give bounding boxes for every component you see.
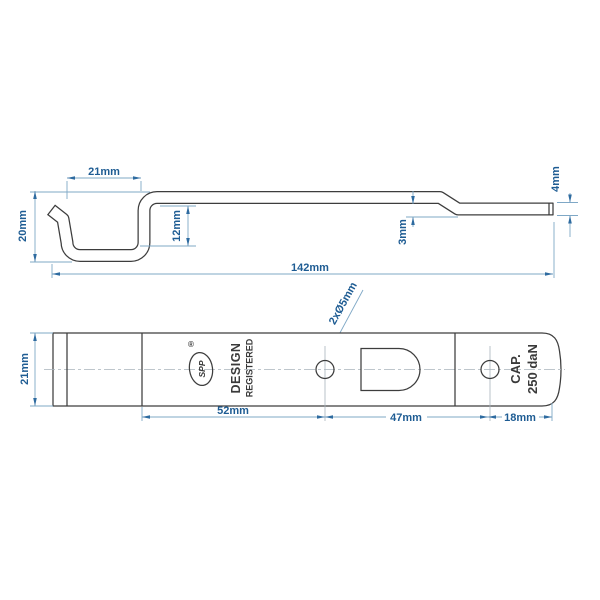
dim-hole-spacing-label: 47mm	[390, 412, 422, 424]
technical-drawing-canvas: 21mm 20mm 12mm 3mm 4mm 142mm 2xØ5mm SPP …	[0, 0, 600, 600]
design-registered-text-line1: DESIGN	[229, 343, 243, 394]
dim-total-length-label: 142mm	[291, 262, 329, 274]
dim-end-thickness-label: 4mm	[550, 166, 562, 192]
registered-trademark-symbol: ®	[188, 340, 194, 349]
dim-inner-height-label: 12mm	[171, 210, 183, 242]
logo-text: SPP	[197, 360, 207, 377]
dim-hook-depth-label: 20mm	[17, 210, 29, 242]
dim-hook-opening-label: 21mm	[88, 166, 120, 178]
holes-diameter-label: 2xØ5mm	[327, 280, 360, 327]
dim-bend-to-hole-label: 52mm	[217, 405, 249, 417]
dim-hole-to-end-label: 18mm	[504, 412, 536, 424]
capacity-text-line1: CAP.	[508, 354, 523, 383]
dim-plate-width-label: 21mm	[19, 353, 31, 385]
technical-drawing-page: 21mm 20mm 12mm 3mm 4mm 142mm 2xØ5mm SPP …	[0, 0, 600, 600]
dim-step-offset-label: 3mm	[397, 219, 409, 245]
hook-bar-core	[52, 198, 554, 256]
plan-view: SPP ® DESIGN REGISTERED CAP. 250 daN 21m…	[19, 333, 565, 425]
capacity-text-line2: 250 daN	[525, 344, 540, 394]
design-registered-text-line2: REGISTERED	[245, 338, 255, 397]
